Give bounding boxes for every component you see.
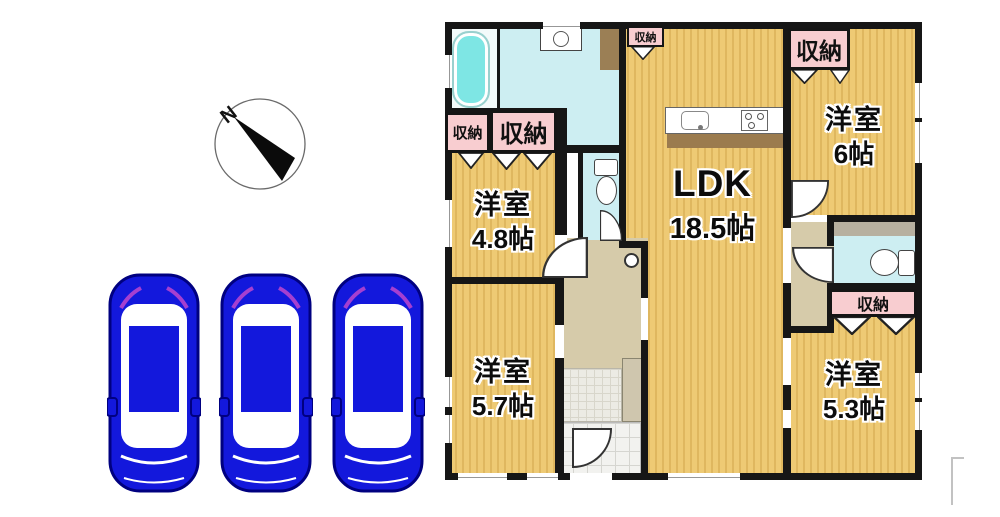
kitchen-shelf <box>667 134 787 148</box>
toilet-tank-icon <box>594 159 618 176</box>
bathtub-icon <box>452 31 490 108</box>
wall <box>783 428 791 473</box>
room-western48-name: 洋室 <box>448 183 558 222</box>
room-western6-size: 6帖 <box>790 134 918 171</box>
wall <box>445 277 564 284</box>
closet-label: 収納 <box>788 28 850 70</box>
stove-burner-icon <box>748 122 755 129</box>
room-western53-size: 5.3帖 <box>790 389 918 426</box>
shoe-cabinet <box>622 358 642 422</box>
door-arc-icon <box>792 247 834 283</box>
toilet-icon <box>596 176 617 205</box>
closet-label: 収納 <box>627 26 664 47</box>
closet-door-icon <box>458 152 484 169</box>
room-ldk-size: 18.5帖 <box>635 205 790 247</box>
wall <box>641 248 648 298</box>
wall <box>827 222 834 246</box>
room-western53-name: 洋室 <box>790 353 918 392</box>
closet-door-icon <box>791 69 818 84</box>
car-icon <box>331 272 425 494</box>
toilet-icon <box>870 249 899 276</box>
door-opening <box>641 298 648 340</box>
closet-door-icon <box>877 316 915 335</box>
wall <box>783 326 834 333</box>
wall <box>555 284 564 325</box>
toilet-tank-icon <box>898 250 915 276</box>
step-tile <box>561 368 622 422</box>
closet-label: 収納 <box>445 112 490 153</box>
window <box>668 473 740 480</box>
closet-door-icon <box>631 46 655 60</box>
car-icon <box>219 272 313 494</box>
room-ldk-name: LDK <box>635 163 790 205</box>
wall <box>567 145 626 153</box>
compass-needle-icon <box>234 117 295 181</box>
closet-door-icon <box>523 152 552 170</box>
kitchen-faucet-icon <box>698 125 703 130</box>
wall <box>827 215 922 222</box>
wall <box>641 340 648 473</box>
room-western6-name: 洋室 <box>790 98 918 137</box>
entrance-door-opening <box>570 473 612 480</box>
washbasin-bowl-icon <box>553 31 569 47</box>
closet-door-icon <box>833 316 871 335</box>
door-arc-icon <box>600 210 622 241</box>
floor-plan: N <box>0 0 1000 517</box>
wall <box>497 28 500 108</box>
closet-label: 収納 <box>829 289 917 317</box>
water-heater-icon <box>624 253 639 268</box>
kitchen-sink <box>681 111 709 130</box>
room-western57-size: 5.7帖 <box>448 386 558 423</box>
washroom-cabinet <box>600 28 620 70</box>
boundary-mark <box>951 457 953 505</box>
window <box>445 55 452 88</box>
wall <box>445 22 922 29</box>
window <box>458 473 507 480</box>
room-western57-name: 洋室 <box>448 350 558 389</box>
room-western48-size: 4.8帖 <box>448 219 558 256</box>
door-arc-icon <box>791 180 829 218</box>
door-arc-icon <box>572 428 612 468</box>
closet-door-icon <box>492 152 521 170</box>
car-icon <box>107 272 201 494</box>
stove-burner-icon <box>745 113 752 120</box>
wall <box>578 153 583 240</box>
closet-door-icon <box>830 69 850 84</box>
stove-burner-icon <box>757 113 764 120</box>
toilet2-shelf <box>834 222 915 236</box>
closet-label: 収納 <box>490 110 557 153</box>
window <box>543 22 580 29</box>
window <box>527 473 558 480</box>
